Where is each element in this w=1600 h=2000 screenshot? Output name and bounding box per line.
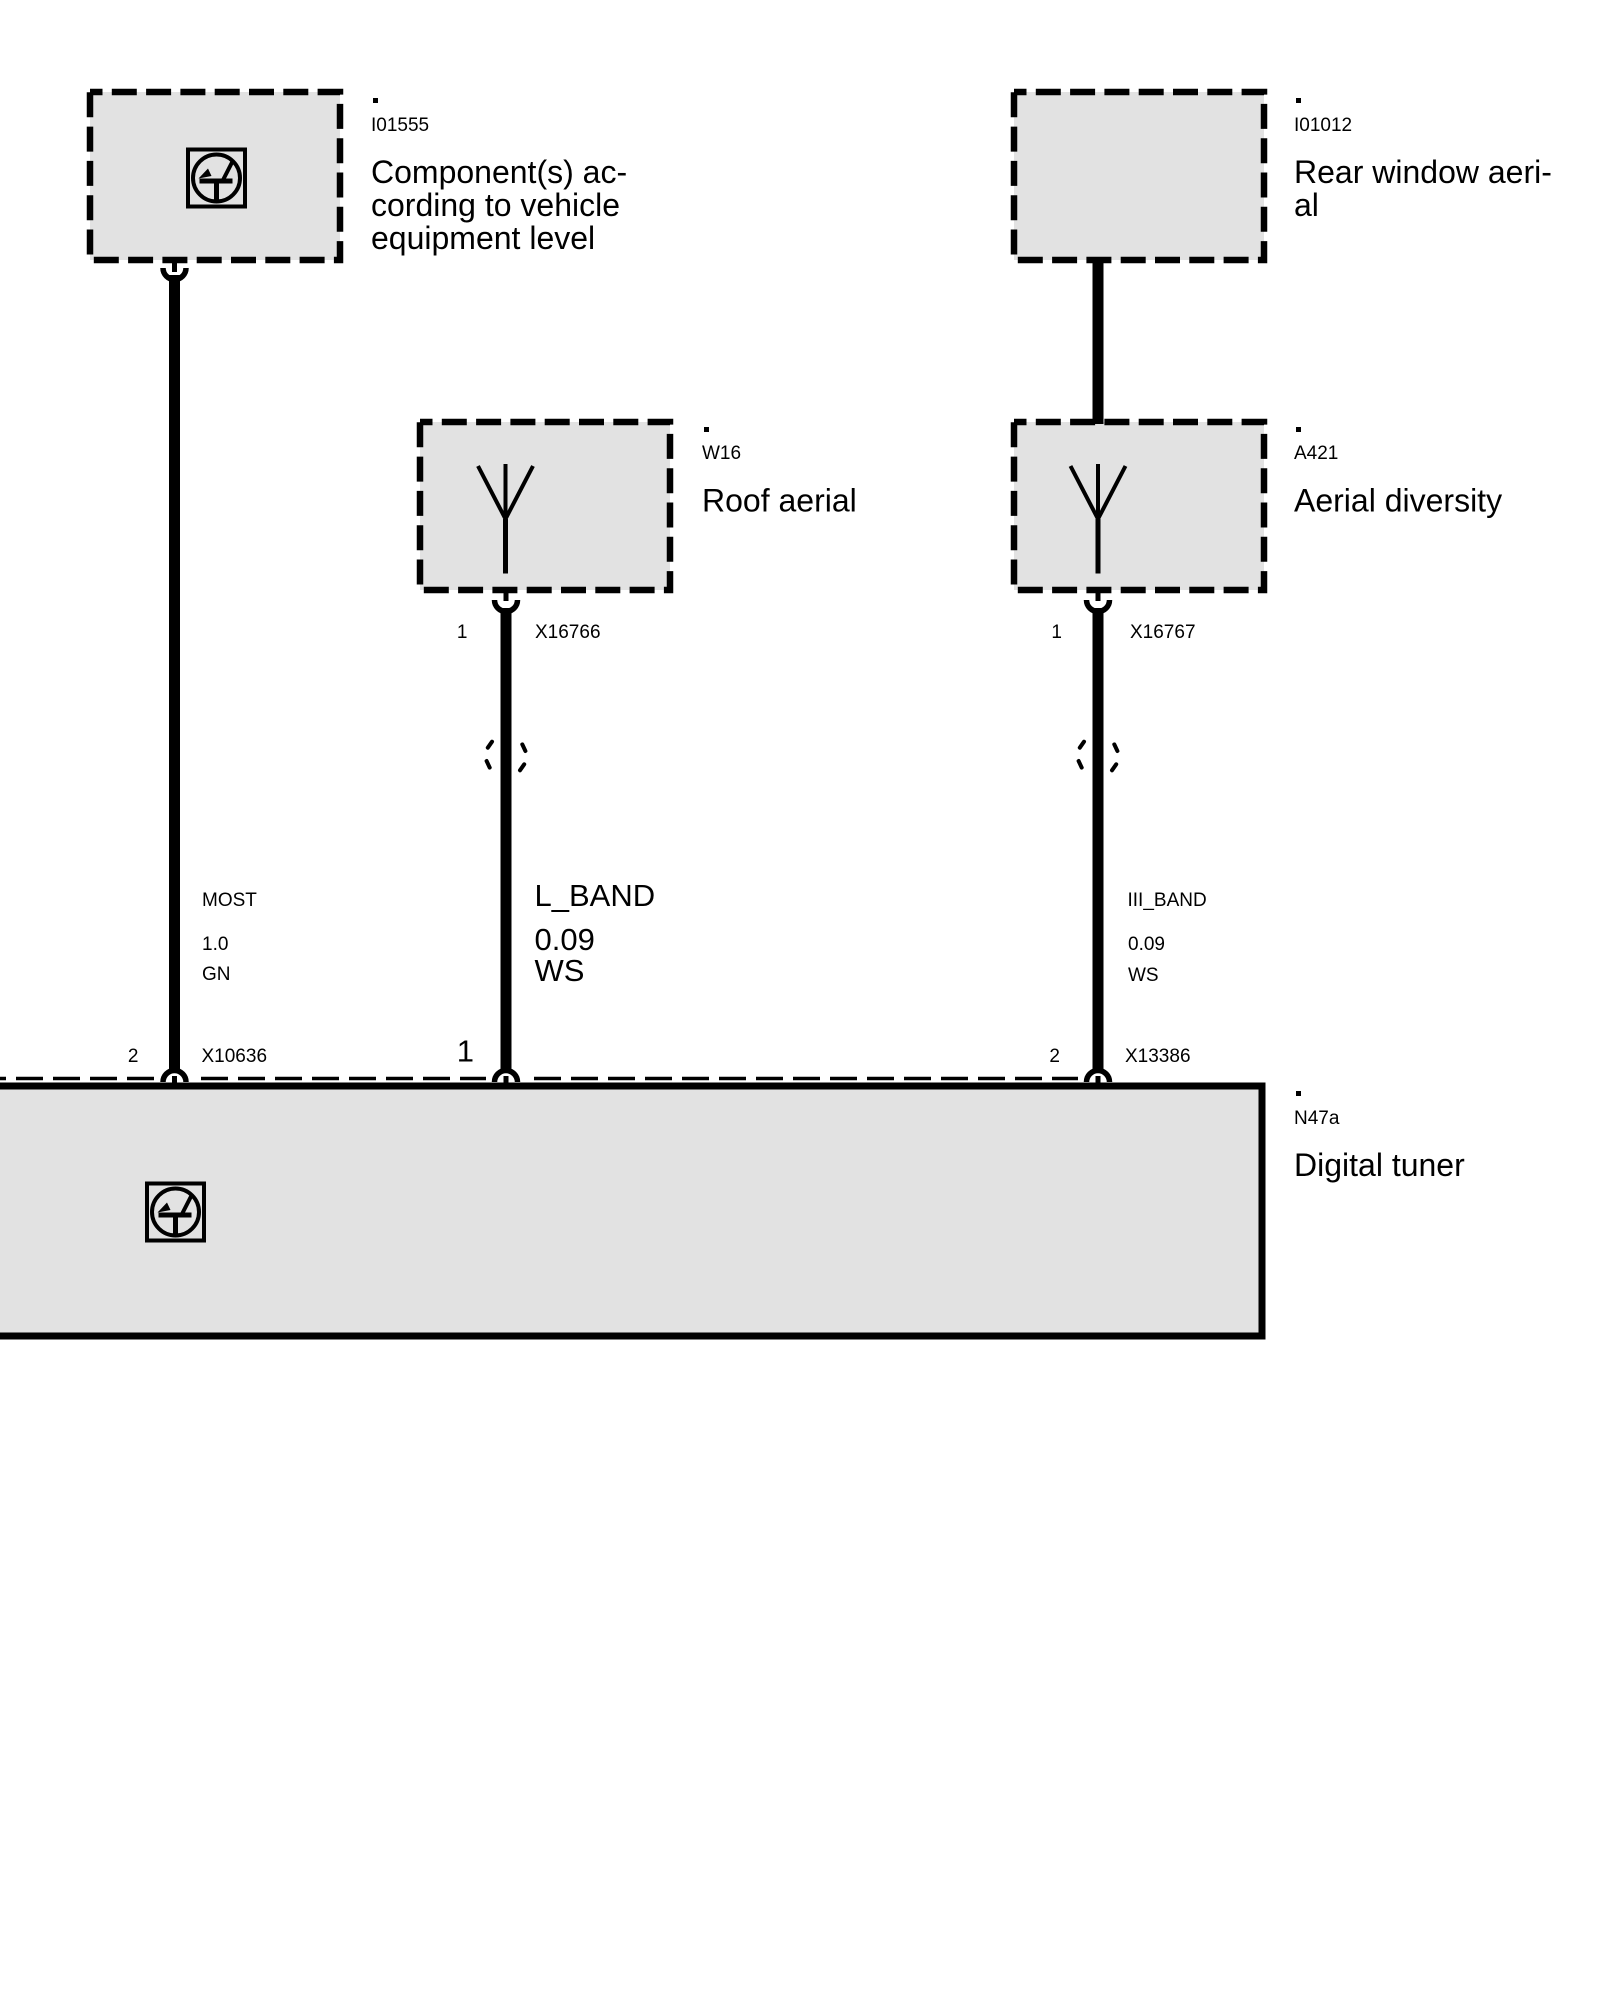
svg-text:A421: A421 (1294, 443, 1338, 464)
svg-text:0.09: 0.09 (1128, 934, 1165, 955)
svg-text:2: 2 (1049, 1046, 1060, 1067)
svg-text:W16: W16 (702, 443, 741, 464)
svg-text:X16766: X16766 (535, 622, 601, 643)
svg-text:MOST: MOST (202, 890, 257, 911)
svg-text:1: 1 (457, 622, 468, 643)
svg-text:Rear window aeri-: Rear window aeri- (1294, 154, 1552, 190)
svg-text:I01012: I01012 (1294, 115, 1352, 136)
svg-text:WS: WS (1128, 965, 1159, 986)
svg-text:Aerial diversity: Aerial diversity (1294, 483, 1502, 519)
svg-text:GN: GN (202, 964, 231, 985)
svg-text:WS: WS (535, 953, 585, 988)
svg-text:Digital tuner: Digital tuner (1294, 1147, 1465, 1183)
svg-text:L_BAND: L_BAND (535, 878, 656, 913)
svg-text:1: 1 (1051, 622, 1062, 643)
svg-text:Component(s) ac-: Component(s) ac- (371, 154, 627, 190)
svg-text:2: 2 (128, 1046, 139, 1067)
svg-text:0.09: 0.09 (535, 922, 595, 957)
svg-text:al: al (1294, 187, 1319, 223)
svg-text:Roof aerial: Roof aerial (702, 483, 857, 519)
svg-text:I01555: I01555 (371, 115, 429, 136)
svg-text:cording to vehicle: cording to vehicle (371, 187, 620, 223)
svg-text:1.0: 1.0 (202, 934, 228, 955)
svg-text:1: 1 (457, 1034, 474, 1069)
svg-text:N47a: N47a (1294, 1108, 1340, 1129)
svg-text:III_BAND: III_BAND (1128, 890, 1207, 911)
svg-text:X10636: X10636 (202, 1046, 268, 1067)
svg-text:X16767: X16767 (1130, 622, 1196, 643)
svg-text:X13386: X13386 (1125, 1046, 1191, 1067)
svg-text:equipment level: equipment level (371, 220, 595, 256)
